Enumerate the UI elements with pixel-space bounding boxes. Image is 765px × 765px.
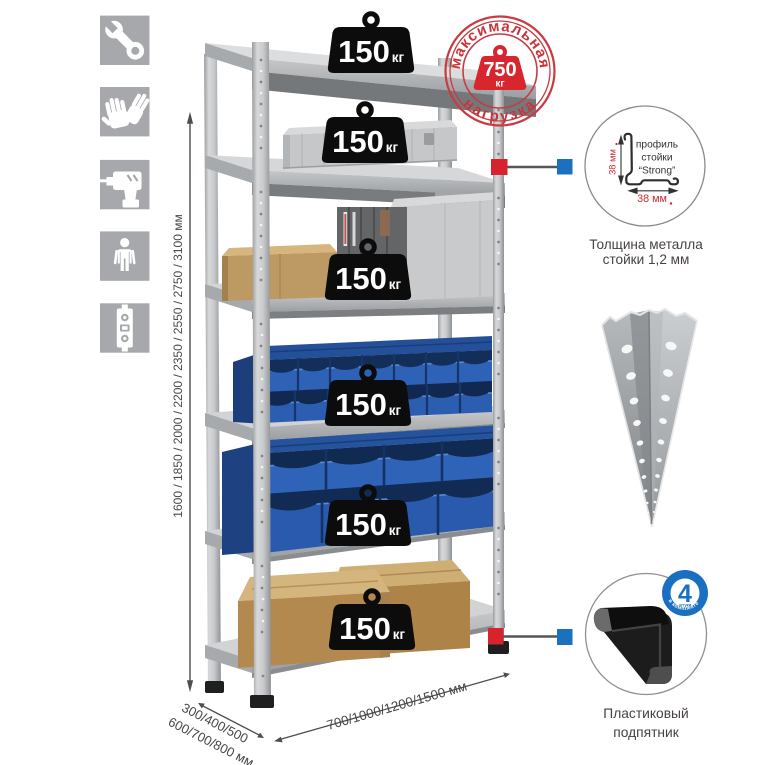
svg-text:кг: кг: [495, 79, 504, 90]
svg-text:кг: кг: [392, 50, 405, 65]
svg-text:стойки: стойки: [641, 153, 672, 164]
svg-text:150: 150: [335, 387, 387, 422]
svg-text:1600 / 1850 / 2000 / 2200 / 23: 1600 / 1850 / 2000 / 2200 / 2350 / 2550 …: [171, 214, 185, 517]
svg-text:“Strong”: “Strong”: [639, 166, 676, 177]
svg-text:кг: кг: [389, 403, 402, 418]
svg-text:150: 150: [335, 507, 387, 542]
svg-text:профиль: профиль: [636, 139, 678, 151]
svg-text:150: 150: [339, 611, 391, 646]
svg-text:кг: кг: [386, 140, 399, 155]
svg-text:Пластиковый: Пластиковый: [603, 706, 688, 721]
svg-text:кг: кг: [389, 277, 402, 292]
svg-text:38 мм: 38 мм: [608, 149, 618, 175]
svg-text:150: 150: [335, 261, 387, 296]
svg-text:подпятник: подпятник: [613, 725, 679, 740]
svg-text:150: 150: [332, 124, 384, 159]
svg-text:кг: кг: [393, 627, 406, 642]
svg-text:150: 150: [338, 34, 390, 69]
svg-text:38 мм: 38 мм: [637, 193, 667, 205]
svg-text:Толщина металла: Толщина металла: [589, 237, 703, 252]
svg-text:кг: кг: [389, 523, 402, 538]
svg-text:стойки 1,2 мм: стойки 1,2 мм: [603, 252, 690, 267]
